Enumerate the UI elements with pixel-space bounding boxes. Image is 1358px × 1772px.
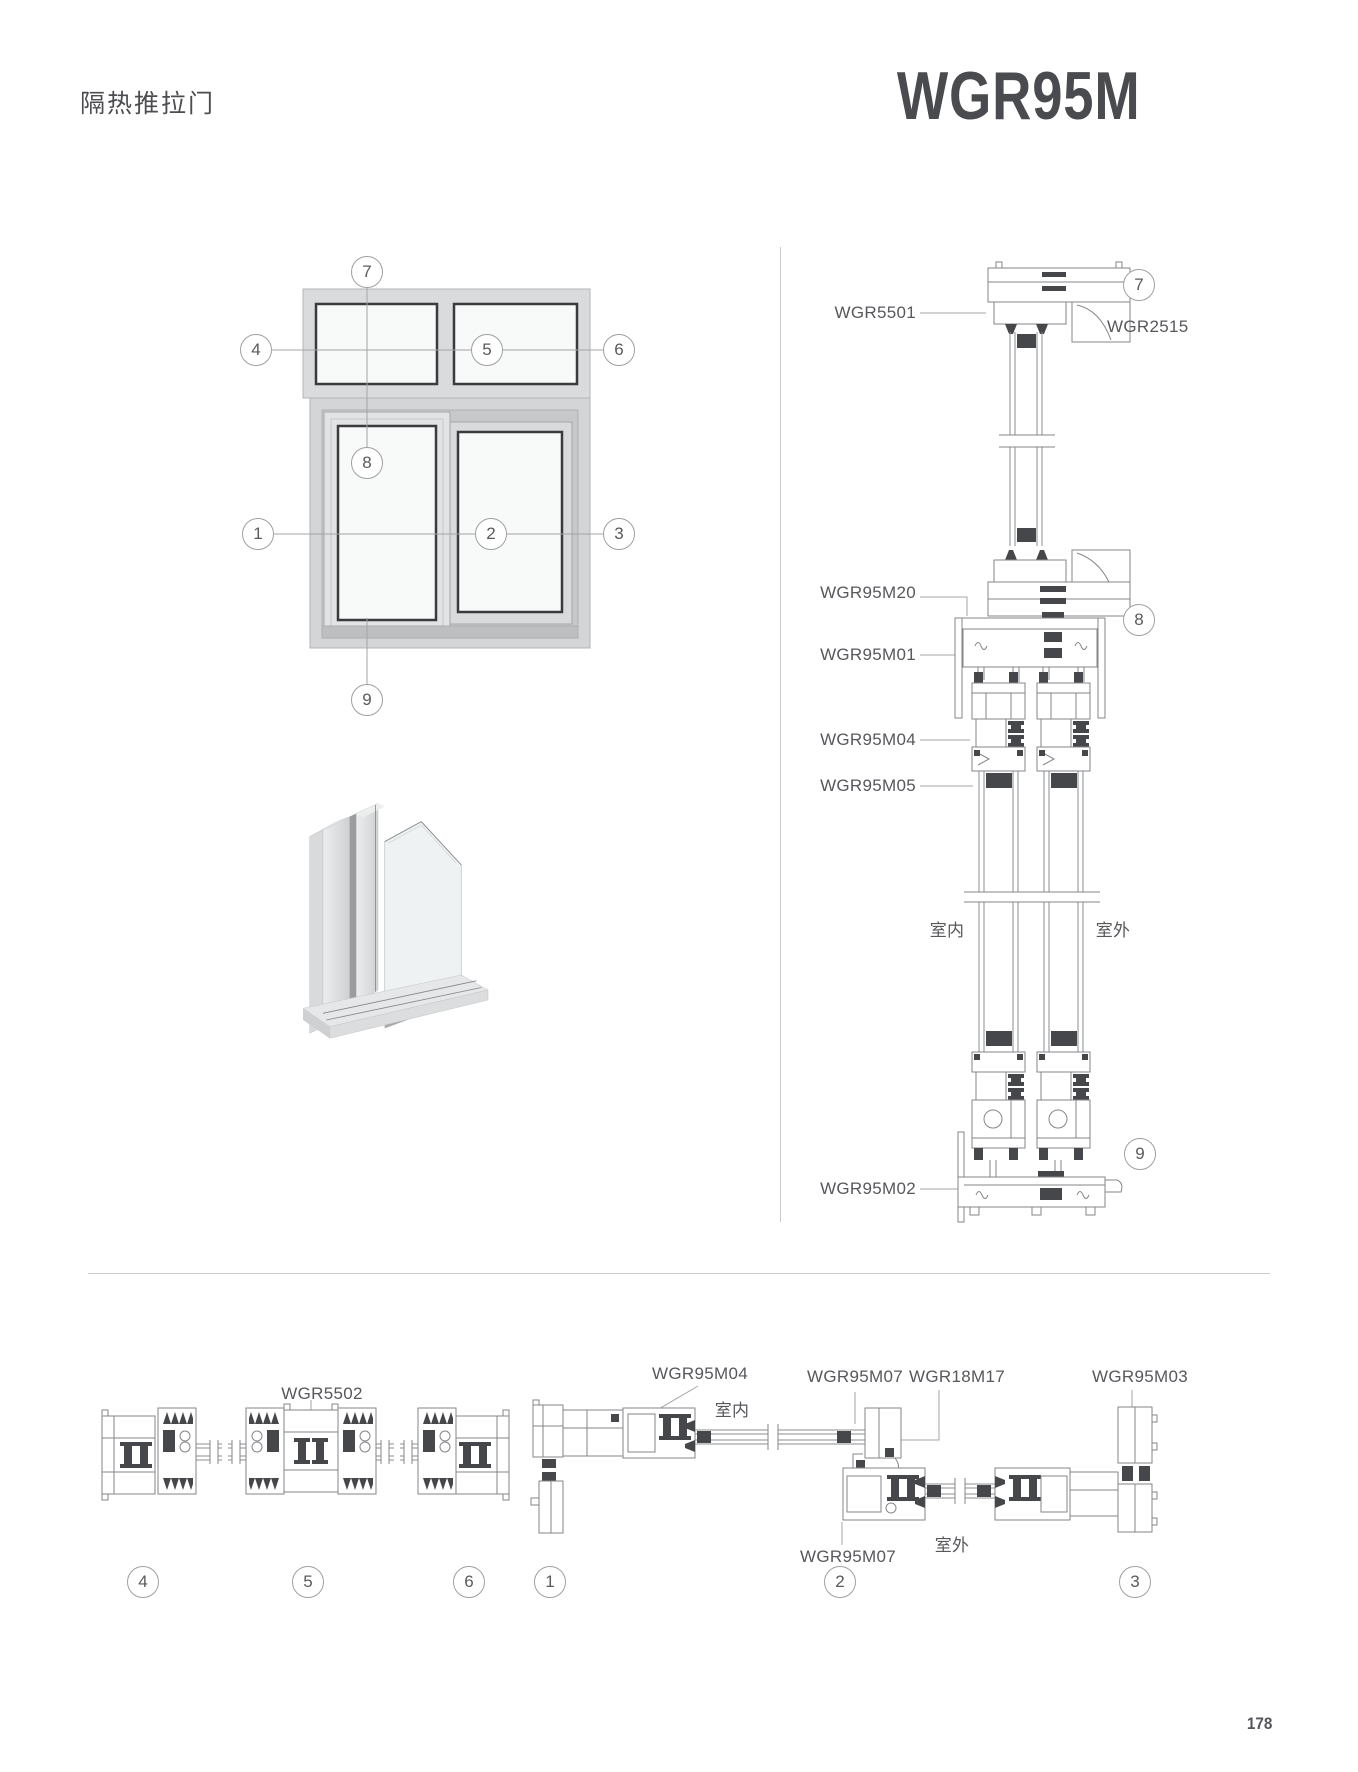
part-label-adapter: WGR95M20 bbox=[716, 583, 916, 603]
horizontal-sections-left bbox=[80, 1400, 520, 1530]
horizontal-divider bbox=[88, 1273, 1270, 1274]
model-number: WGR95M bbox=[896, 62, 1140, 130]
indoor-label: 室内 bbox=[897, 916, 997, 941]
part-label-transom: WGR95M01 bbox=[716, 645, 916, 665]
hsection-3 bbox=[1118, 1407, 1157, 1532]
hsection-2 bbox=[843, 1454, 925, 1520]
page-title: 隔热推拉门 bbox=[80, 84, 215, 120]
catalog-page: 隔热推拉门 WGR95M 7 4 5 6 8 1 2 3 9 bbox=[0, 0, 1358, 1772]
indoor-label-bottom: 室内 bbox=[682, 1396, 782, 1421]
callout-9: 9 bbox=[351, 684, 383, 716]
part-label-sash-profile: WGR95M04 bbox=[716, 730, 916, 750]
outdoor-label: 室外 bbox=[1063, 916, 1163, 941]
part-label-head-frame: WGR5501 bbox=[716, 303, 916, 323]
profile-3d-render bbox=[298, 790, 498, 1040]
callout-1: 1 bbox=[242, 518, 274, 550]
vsection-callout-9: 9 bbox=[1124, 1138, 1156, 1170]
hsection-4 bbox=[102, 1408, 222, 1500]
outdoor-label-bottom: 室外 bbox=[902, 1531, 1002, 1556]
hsection-callout-6: 6 bbox=[453, 1566, 485, 1598]
hsection-callout-3: 3 bbox=[1119, 1566, 1151, 1598]
hsection-callout-5: 5 bbox=[292, 1566, 324, 1598]
elevation-window bbox=[303, 289, 590, 648]
hsection-callout-1: 1 bbox=[534, 1566, 566, 1598]
callout-7: 7 bbox=[351, 256, 383, 288]
part-label-meeting-bottom: WGR95M07 bbox=[788, 1547, 908, 1567]
callout-4: 4 bbox=[240, 334, 272, 366]
callout-2: 2 bbox=[475, 518, 507, 550]
part-label-sill: WGR95M02 bbox=[716, 1179, 916, 1199]
page-number: 178 bbox=[1246, 1714, 1272, 1734]
callout-6: 6 bbox=[603, 334, 635, 366]
vsection-callout-7: 7 bbox=[1123, 269, 1155, 301]
hsection-callout-4: 4 bbox=[127, 1566, 159, 1598]
hsection-callout-2: 2 bbox=[824, 1566, 856, 1598]
hsection-6 bbox=[400, 1408, 509, 1500]
part-label-glazing-bead: WGR2515 bbox=[1107, 317, 1188, 337]
vsection-callout-8: 8 bbox=[1123, 604, 1155, 636]
callout-3: 3 bbox=[603, 518, 635, 550]
part-label-glazing-clamp: WGR95M05 bbox=[716, 776, 916, 796]
part-label-mullion: WGR5502 bbox=[262, 1384, 382, 1404]
callout-8: 8 bbox=[351, 447, 383, 479]
hsection-1 bbox=[531, 1400, 695, 1533]
part-label-interlock: WGR95M04 bbox=[640, 1364, 760, 1384]
part-label-corner-joint: WGR18M17 bbox=[897, 1367, 1017, 1387]
window-elevation-drawing bbox=[230, 250, 650, 720]
callout-5: 5 bbox=[471, 334, 503, 366]
part-label-jamb: WGR95M03 bbox=[1080, 1367, 1200, 1387]
hsection-5 bbox=[228, 1404, 394, 1494]
